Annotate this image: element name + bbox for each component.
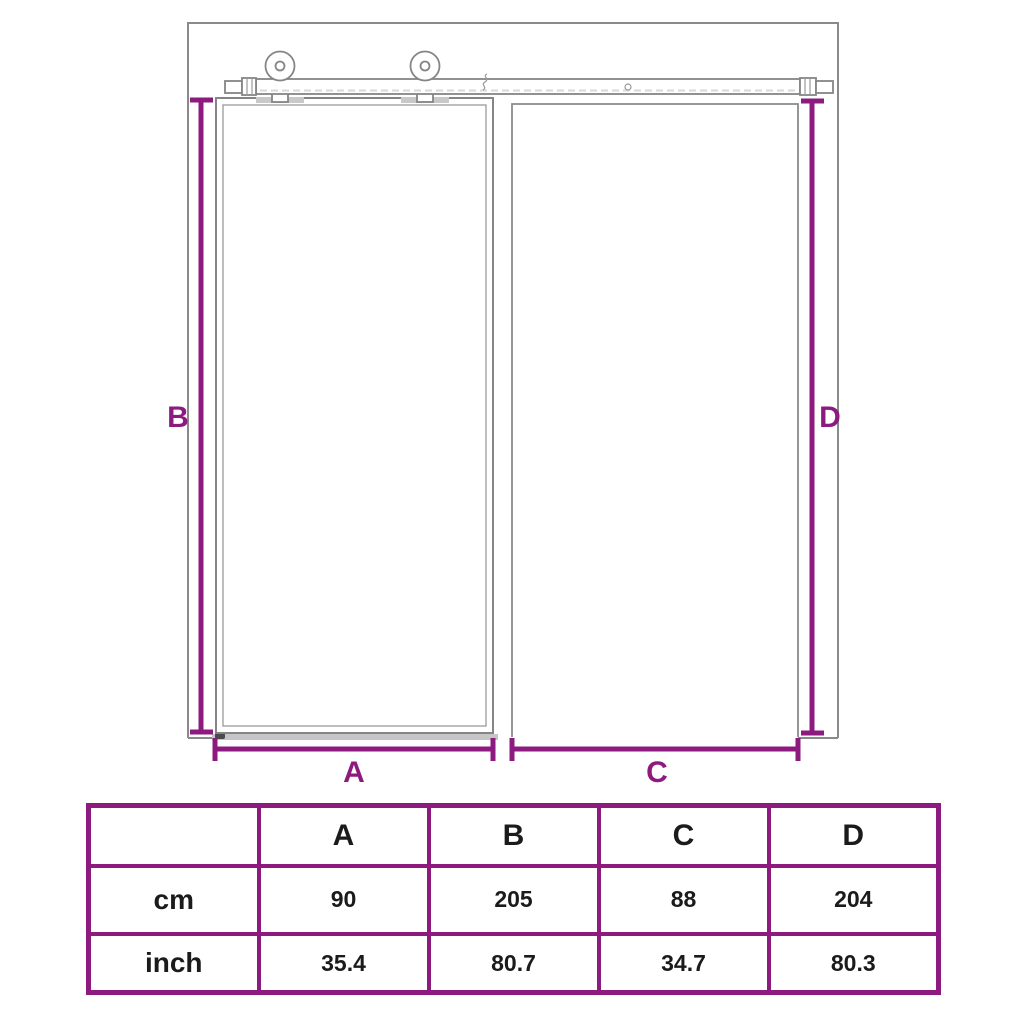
cell-inch-a: 35.4 xyxy=(259,934,429,992)
dimension-label-b: B xyxy=(167,401,189,434)
table-header-b: B xyxy=(429,806,599,866)
sliding-door-panel xyxy=(216,98,493,733)
door-opening xyxy=(512,104,798,737)
dimension-label-c: C xyxy=(646,756,668,789)
dimension-label-a: A xyxy=(343,756,365,789)
cell-cm-b: 205 xyxy=(429,866,599,934)
row-label-inch: inch xyxy=(89,934,259,992)
cell-cm-a: 90 xyxy=(259,866,429,934)
table-header-c: C xyxy=(599,806,769,866)
row-label-cm: cm xyxy=(89,866,259,934)
table-row-cm: cm 90 205 88 204 xyxy=(89,866,939,934)
cell-cm-d: 204 xyxy=(769,866,939,934)
cell-cm-c: 88 xyxy=(599,866,769,934)
roller-wheel-1 xyxy=(266,52,295,81)
table-row-inch: inch 35.4 80.7 34.7 80.3 xyxy=(89,934,939,992)
rail-bar xyxy=(256,79,800,94)
cell-inch-d: 80.3 xyxy=(769,934,939,992)
dimension-line-b xyxy=(190,100,213,732)
table-header-row: A B C D xyxy=(89,806,939,866)
table-header-a: A xyxy=(259,806,429,866)
rail-end-cap-right xyxy=(800,78,833,95)
roller-wheel-2 xyxy=(411,52,440,81)
cell-inch-b: 80.7 xyxy=(429,934,599,992)
rail-end-cap-left xyxy=(225,78,256,95)
table-header-d: D xyxy=(769,806,939,866)
page-background: B D A C A B xyxy=(0,0,1024,1024)
dimensions-table: A B C D cm 90 205 88 204 inch 35.4 80.7 … xyxy=(86,803,941,995)
table-corner-cell xyxy=(89,806,259,866)
cell-inch-c: 34.7 xyxy=(599,934,769,992)
sliding-door-diagram: B D A C xyxy=(0,0,1024,800)
door-floor-shadow xyxy=(212,734,498,740)
dimension-label-d: D xyxy=(819,401,841,434)
